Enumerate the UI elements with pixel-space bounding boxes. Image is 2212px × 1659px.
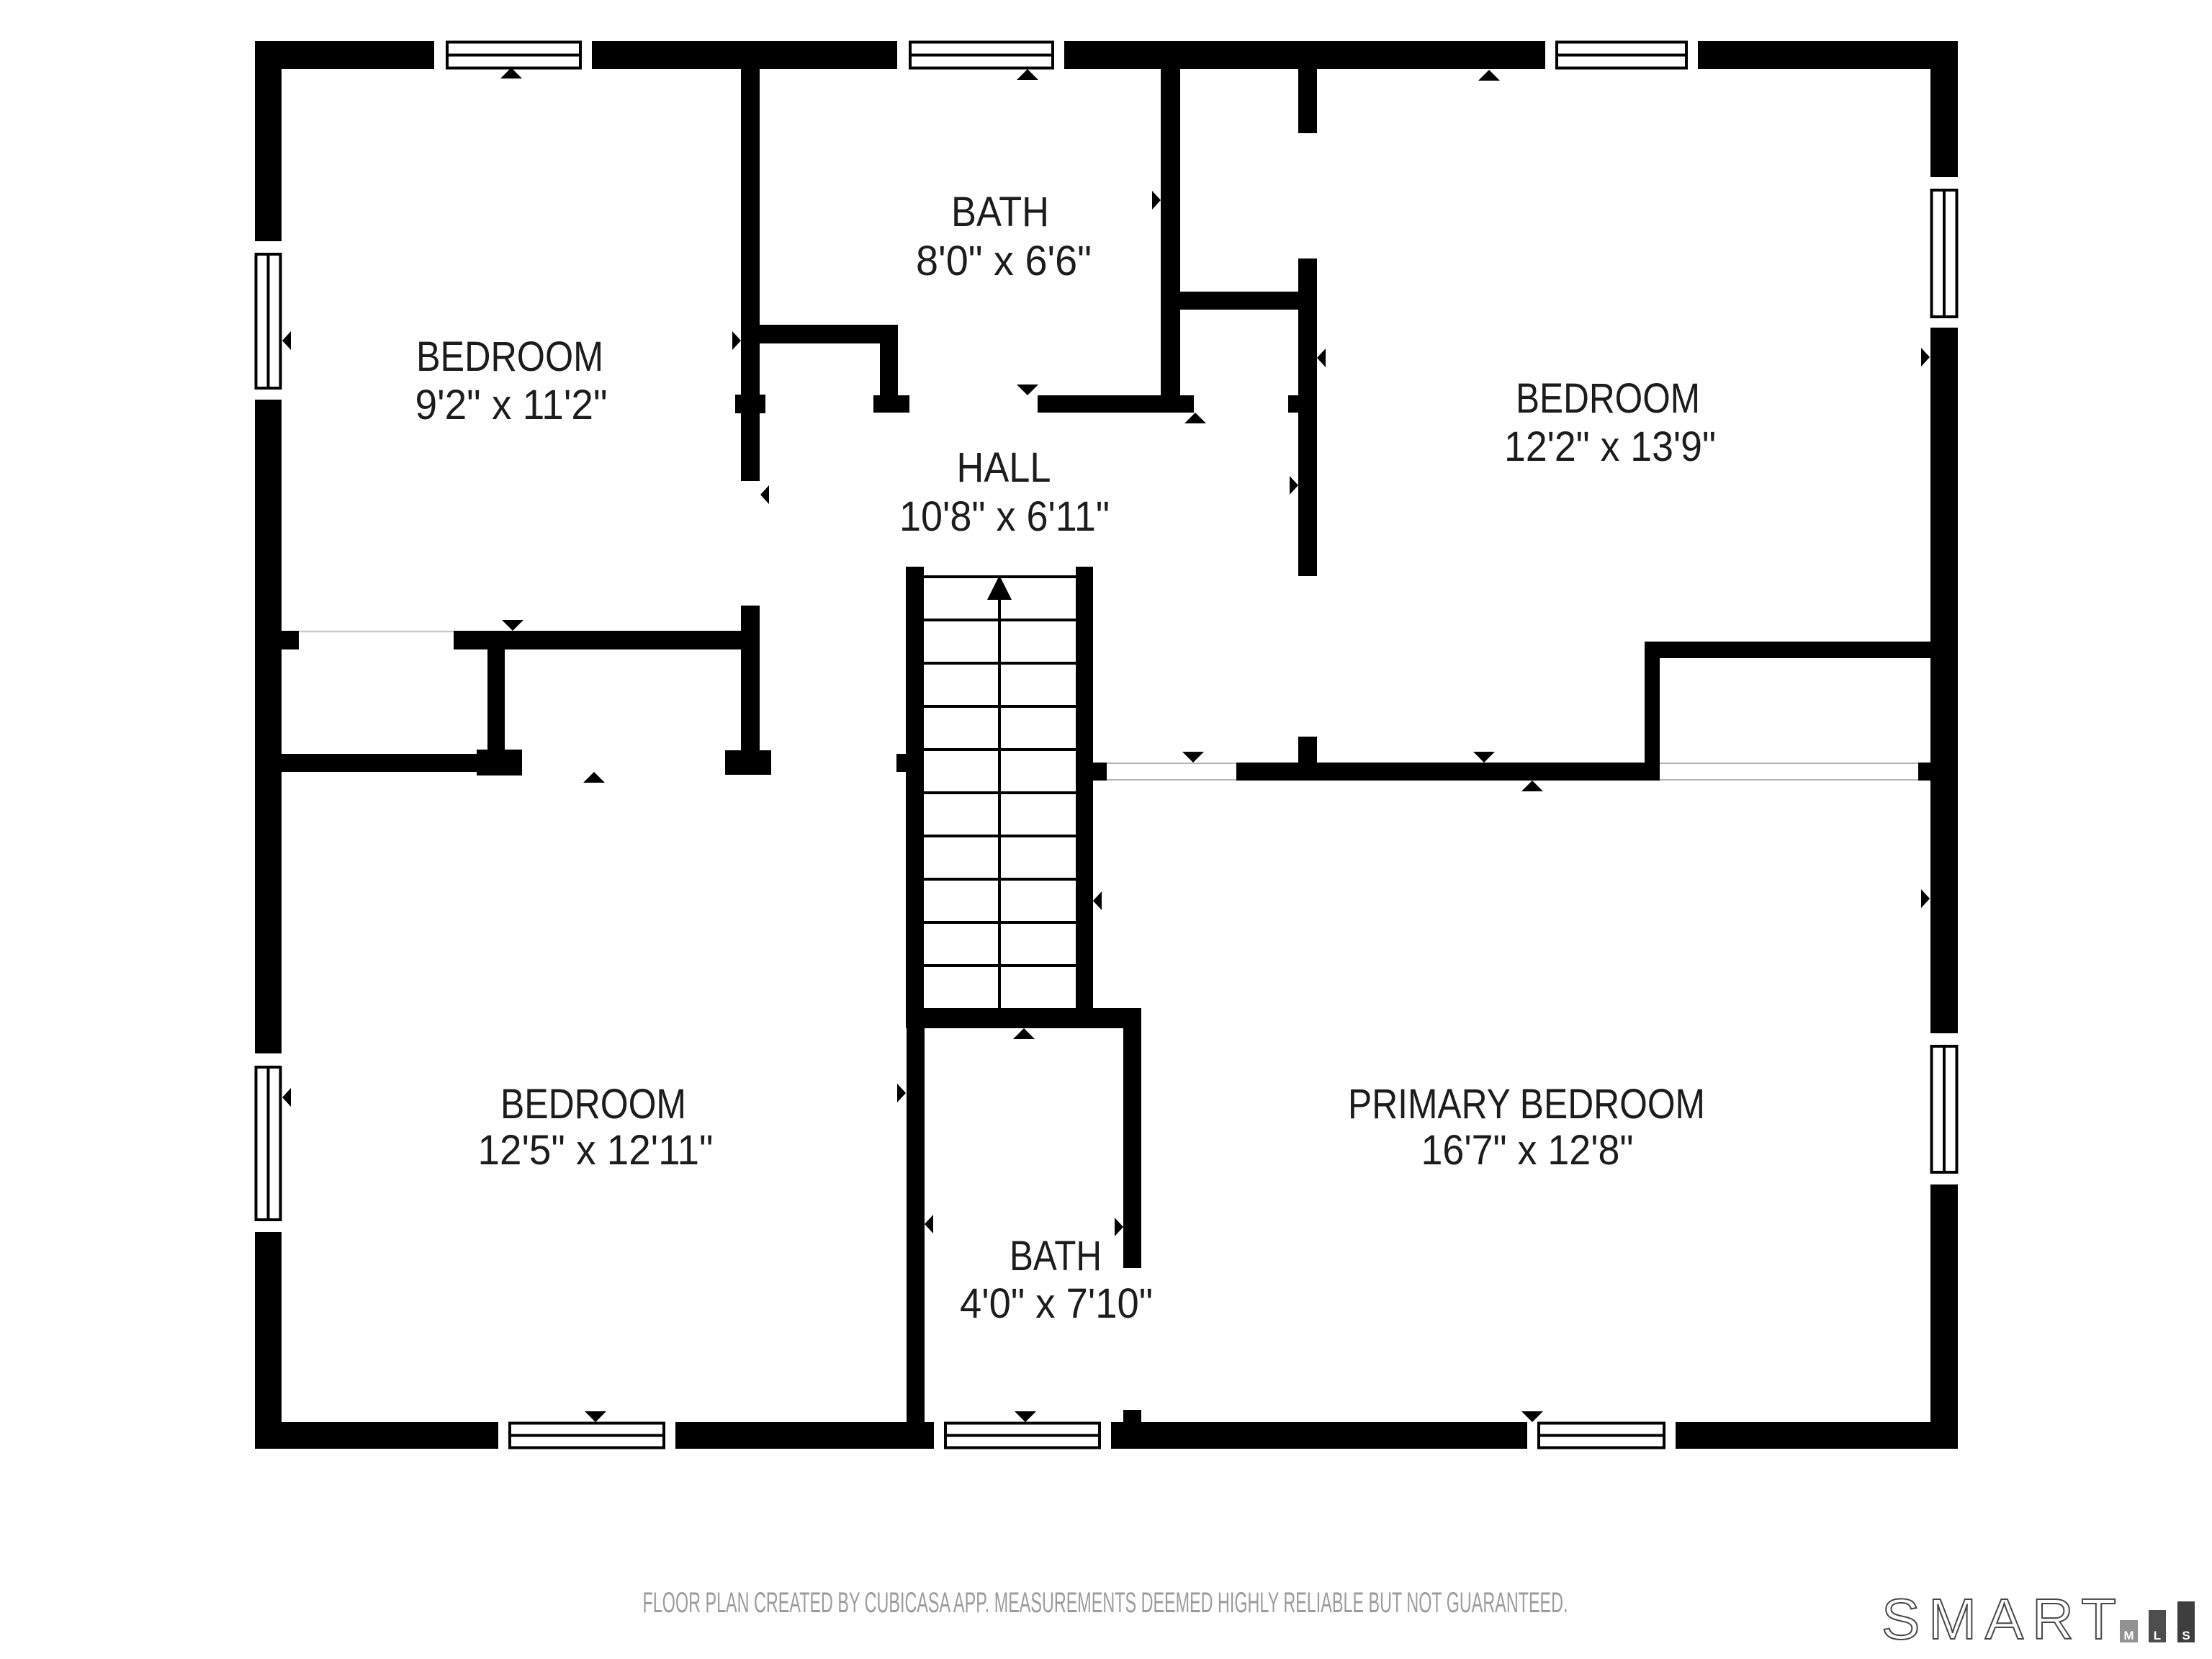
svg-text:M: M	[2123, 1629, 2134, 1642]
svg-text:12'2" x 13'9": 12'2" x 13'9"	[1504, 423, 1716, 470]
svg-text:BATH: BATH	[951, 189, 1049, 235]
svg-text:SMART: SMART	[1881, 1587, 2116, 1651]
svg-text:4'0" x 7'10": 4'0" x 7'10"	[960, 1280, 1153, 1327]
svg-text:FLOOR PLAN CREATED BY CUBICASA: FLOOR PLAN CREATED BY CUBICASA APP. MEAS…	[643, 1587, 1568, 1619]
svg-text:16'7" x 12'8": 16'7" x 12'8"	[1421, 1127, 1634, 1174]
svg-text:8'0" x 6'6": 8'0" x 6'6"	[916, 238, 1092, 284]
svg-text:10'8" x 6'11": 10'8" x 6'11"	[899, 493, 1110, 540]
svg-text:BEDROOM: BEDROOM	[500, 1081, 686, 1128]
svg-text:BEDROOM: BEDROOM	[416, 333, 603, 380]
svg-text:9'2" x 11'2": 9'2" x 11'2"	[415, 382, 608, 428]
svg-text:BATH: BATH	[1010, 1233, 1102, 1280]
svg-text:L: L	[2154, 1629, 2161, 1642]
svg-text:HALL: HALL	[957, 444, 1051, 491]
svg-text:12'5" x 12'11": 12'5" x 12'11"	[478, 1127, 714, 1174]
svg-text:PRIMARY BEDROOM: PRIMARY BEDROOM	[1348, 1081, 1705, 1128]
svg-text:S: S	[2182, 1629, 2190, 1642]
svg-text:BEDROOM: BEDROOM	[1516, 375, 1700, 422]
